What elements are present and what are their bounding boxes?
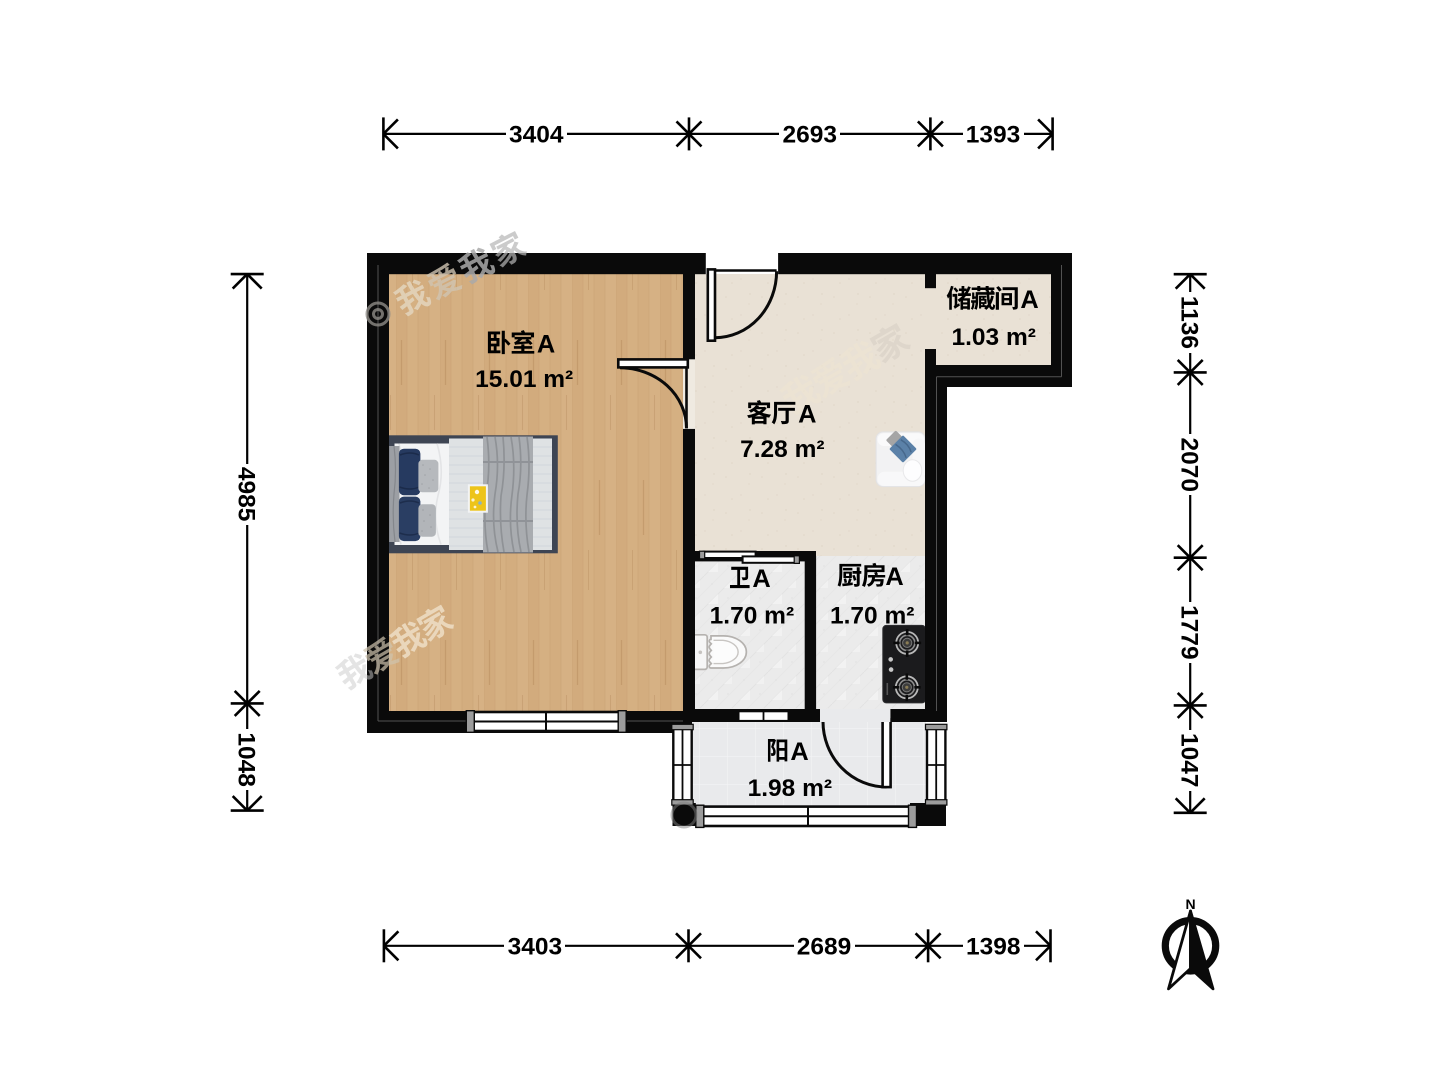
svg-text:4985: 4985 [232, 467, 259, 522]
svg-text:1.70 m²: 1.70 m² [830, 603, 914, 630]
svg-text:A: A [1020, 286, 1038, 314]
svg-text:1048: 1048 [232, 732, 259, 787]
svg-text:1136: 1136 [1175, 296, 1202, 349]
svg-text:1.03 m²: 1.03 m² [951, 324, 1035, 351]
svg-text:7.28 m²: 7.28 m² [740, 436, 824, 463]
svg-text:2693: 2693 [782, 122, 837, 149]
svg-text:1047: 1047 [1175, 733, 1202, 788]
svg-text:1.98 m²: 1.98 m² [748, 775, 832, 802]
svg-text:N: N [1185, 896, 1195, 912]
svg-text:2070: 2070 [1175, 438, 1202, 493]
svg-text:1.70 m²: 1.70 m² [710, 603, 794, 630]
svg-text:15.01 m²: 15.01 m² [475, 366, 573, 393]
svg-text:1393: 1393 [966, 122, 1021, 149]
svg-text:A: A [752, 565, 770, 593]
svg-text:3404: 3404 [509, 122, 564, 149]
svg-text:1779: 1779 [1175, 605, 1202, 660]
svg-text:2689: 2689 [797, 934, 852, 961]
svg-text:1398: 1398 [966, 934, 1021, 961]
svg-text:A: A [798, 401, 816, 429]
svg-text:A: A [537, 331, 555, 359]
svg-text:3403: 3403 [508, 934, 563, 961]
svg-text:A: A [790, 738, 808, 766]
svg-text:A: A [885, 563, 903, 591]
